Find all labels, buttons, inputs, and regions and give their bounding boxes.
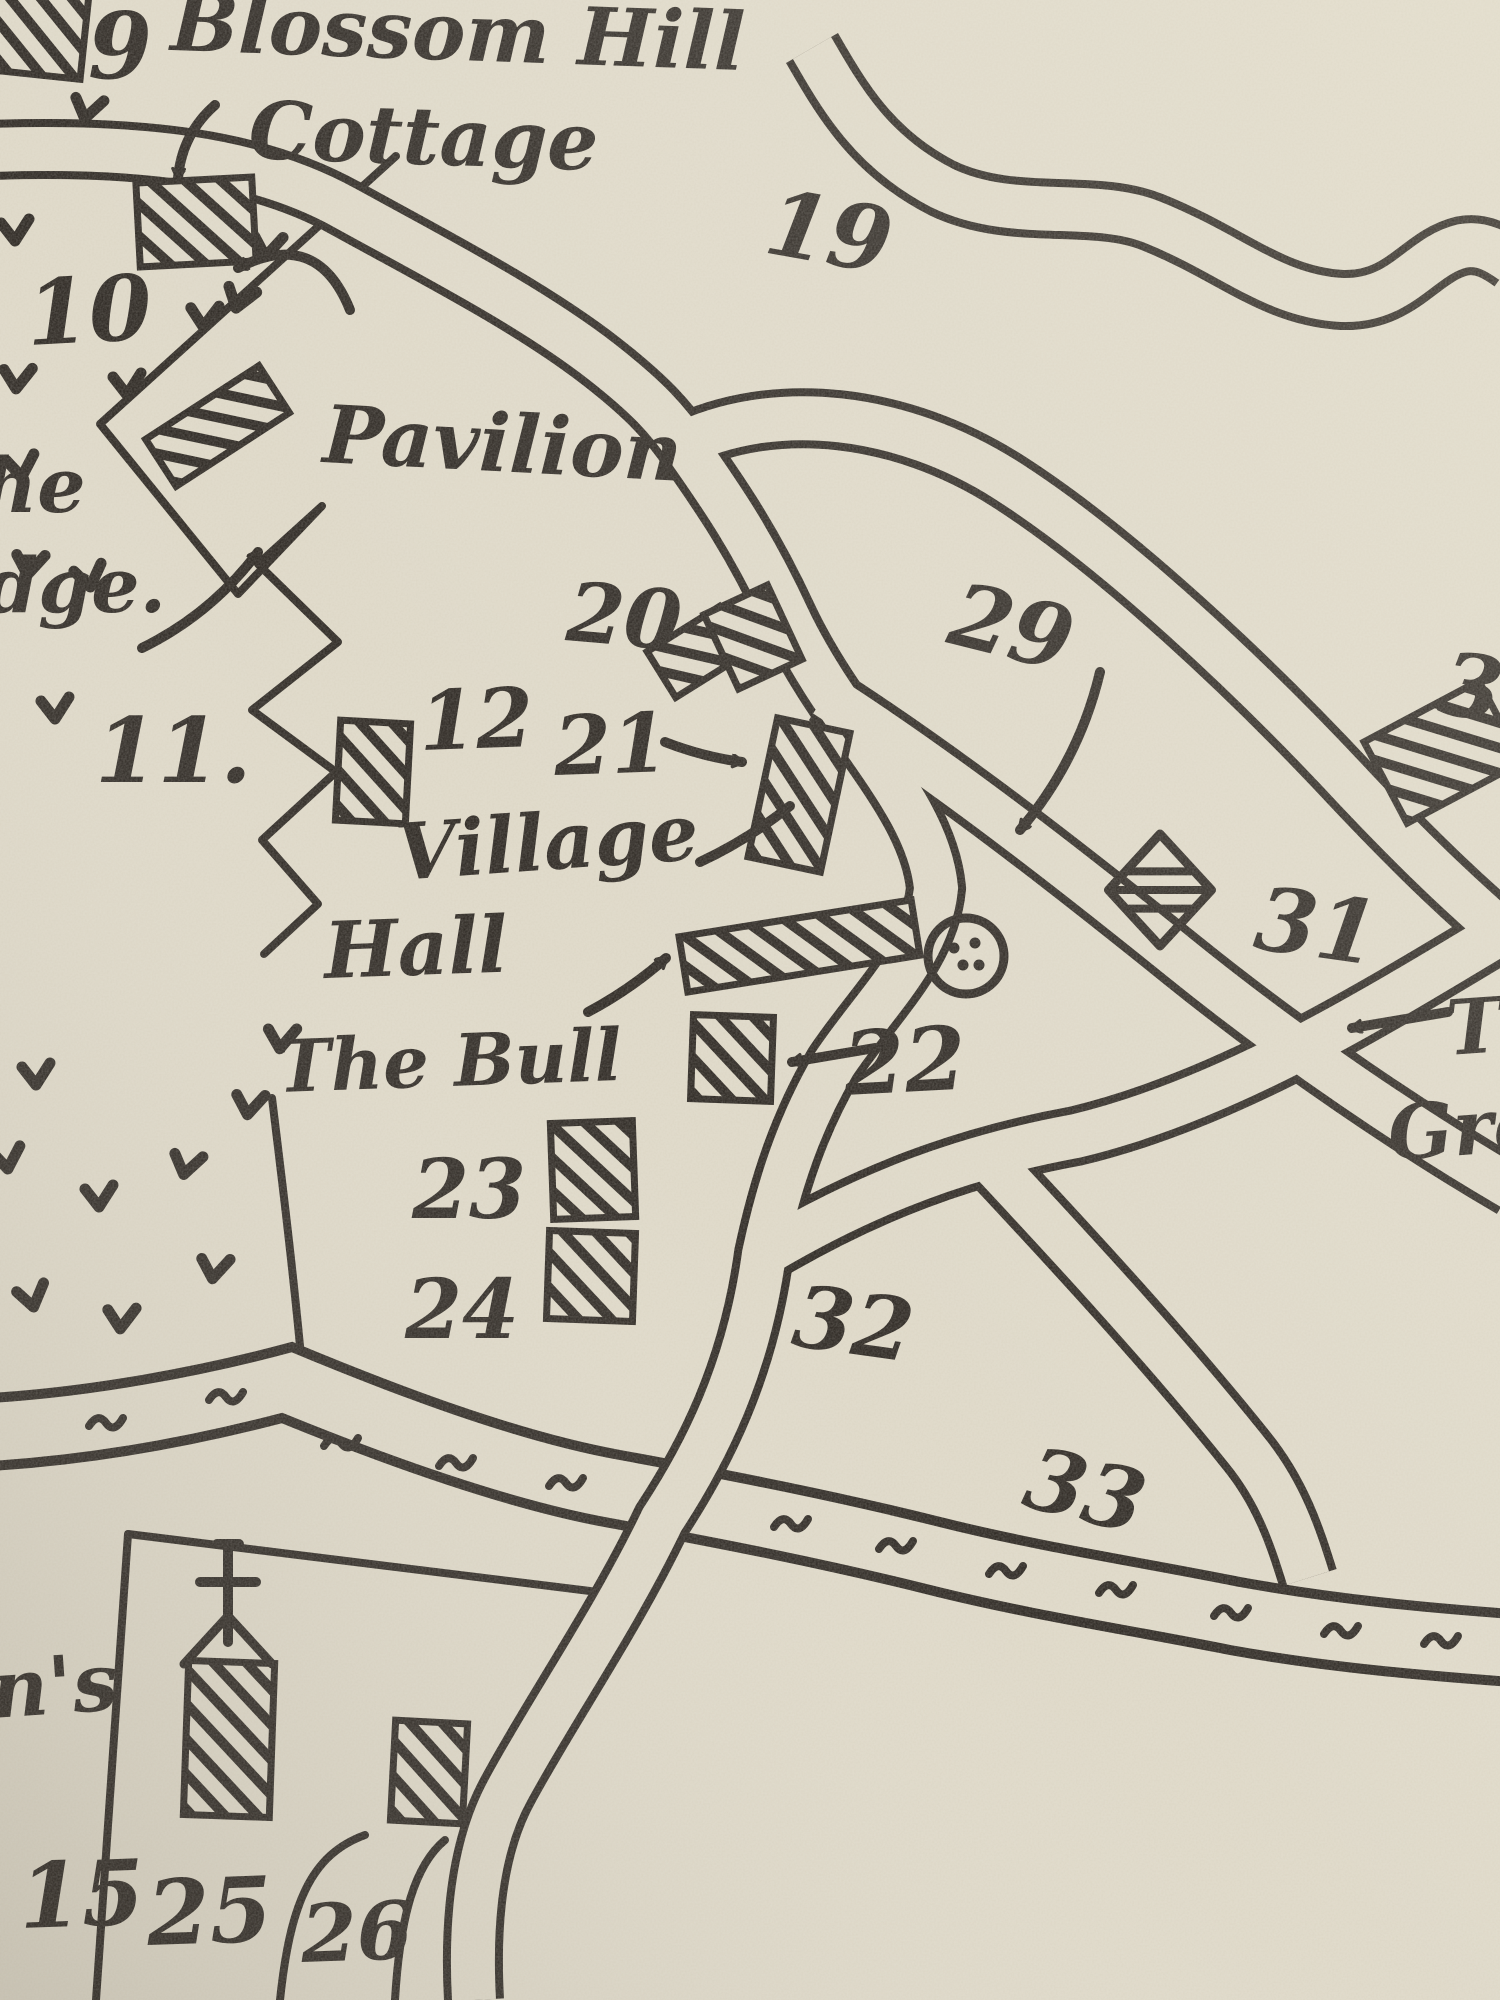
photo-lighting: [0, 0, 1500, 2000]
map-photo: 9Blossom HillCottage1910hedge.11.Pavilio…: [0, 0, 1500, 2000]
village-map: 9Blossom HillCottage1910hedge.11.Pavilio…: [0, 0, 1500, 2000]
